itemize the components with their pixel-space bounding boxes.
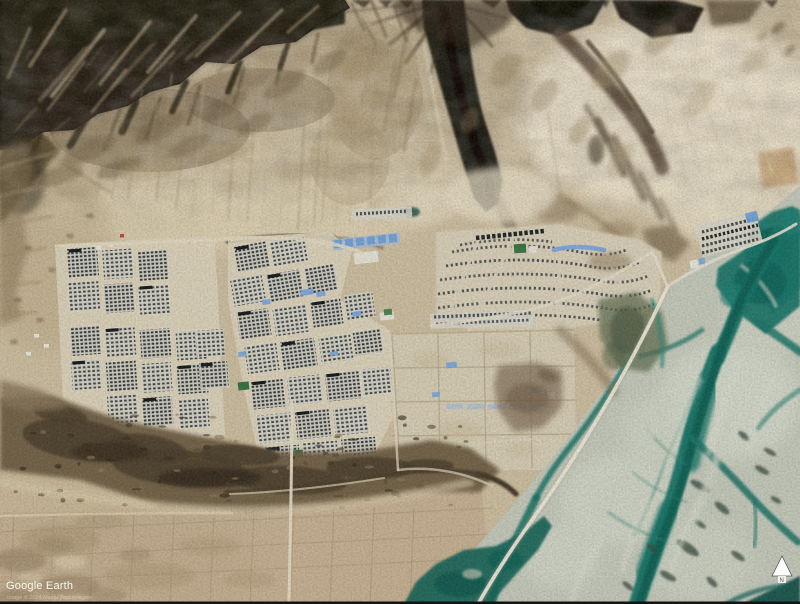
svg-text:N: N (780, 578, 784, 584)
svg-text:Image © 2024 Maxar Technologie: Image © 2024 Maxar Technologies (7, 594, 92, 601)
svg-text:Google Earth: Google Earth (6, 580, 73, 592)
